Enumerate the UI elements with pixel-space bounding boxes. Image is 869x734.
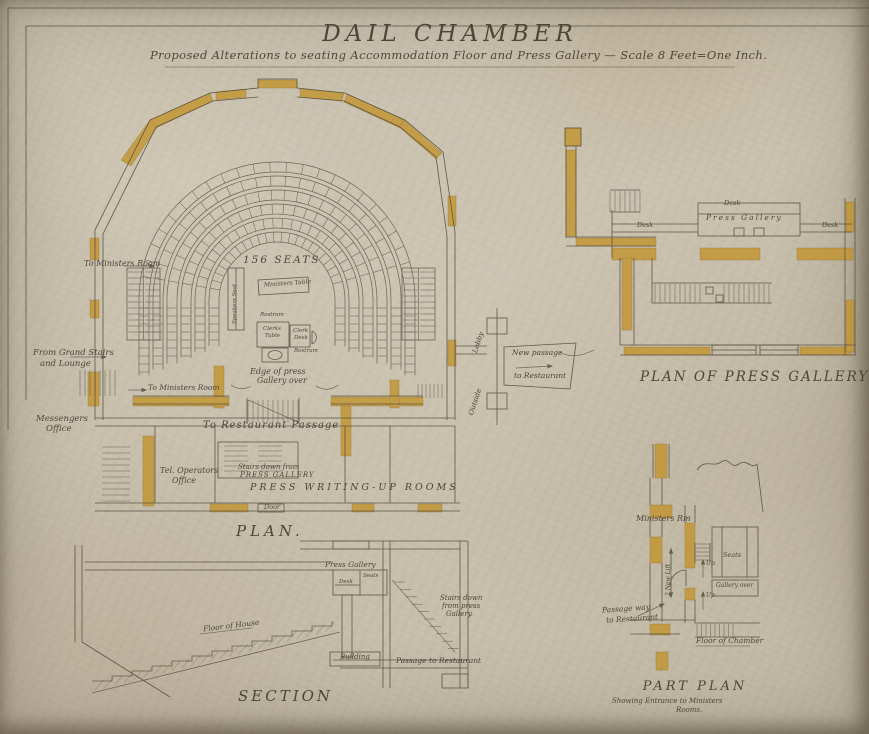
label-edge-of-press-2: Gallery over	[257, 377, 307, 385]
label-stairs-down-2: PRESS GALLERY	[240, 472, 315, 479]
sheet-subtitle: Proposed Alterations to seating Accommod…	[150, 49, 750, 61]
label-seats-count: 156 SEATS	[243, 255, 320, 266]
plan-linework	[0, 0, 869, 734]
label-sec-desk: Desk	[339, 580, 353, 586]
section-drawing	[75, 541, 468, 697]
section-title: SECTION	[238, 689, 333, 705]
label-tel-office-1: Tel. Operators	[160, 467, 218, 475]
chamber-seat-arcs	[139, 162, 415, 375]
label-ministers-rm: Ministers Rm	[636, 515, 691, 523]
label-sec-stairs-down-3: Gallery.	[446, 611, 473, 618]
section-steps-hatch	[92, 580, 459, 693]
label-new-passage-2: to Restaurant	[514, 372, 566, 380]
label-sec-press-gallery: Press Gallery	[325, 561, 376, 569]
label-rostrum-top: Rostrum	[260, 313, 284, 319]
label-to-ministers-room-top: To Ministers Room	[84, 260, 160, 268]
label-from-grand-stairs-1: From Grand Stairs	[33, 349, 114, 358]
label-pp-seats: Seats	[723, 552, 741, 559]
label-floor-of-chamber: Floor of Chamber	[696, 637, 763, 645]
plan-title: PLAN.	[236, 524, 304, 540]
part-plan-subtitle-1: Showing Entrance to Ministers	[612, 698, 723, 705]
label-to-restaurant-passage: To Restaurant Passage	[203, 421, 339, 432]
label-speakers-seat: Speakers Seat	[233, 284, 239, 324]
label-pg-desk-left: Desk	[637, 222, 653, 229]
part-plan-subtitle-2: Rooms.	[676, 707, 702, 714]
label-new-passage-1: New passage	[512, 349, 563, 357]
label-messengers-office-2: Office	[46, 425, 72, 434]
part-plan-title: PART PLAN	[630, 680, 760, 694]
label-up-2: Up	[706, 593, 715, 599]
label-from-grand-stairs-2: and Lounge	[40, 360, 91, 369]
sheet-title: DAIL CHAMBER	[320, 22, 580, 46]
label-clerks-table-1: Clerks	[263, 327, 281, 333]
label-passage-to-restaurant: Passage to Restaurant	[396, 657, 481, 665]
label-clerks-desk-2: Desk	[294, 336, 308, 342]
label-rostrum-bottom: Rostrum	[294, 349, 318, 355]
label-messengers-office-1: Messengers	[36, 415, 88, 424]
label-sec-seats: Seats	[363, 574, 378, 580]
label-pg-desk-top: Desk	[724, 200, 740, 207]
label-to-ministers-room-2: To Ministers Room	[148, 384, 220, 392]
label-tel-office-2: Office	[172, 477, 196, 485]
drawing-sheet: DAIL CHAMBER Proposed Alterations to sea…	[0, 0, 869, 734]
label-building: Building	[340, 654, 370, 661]
label-pp-gallery-over: Gallery over	[716, 583, 753, 589]
label-up-1: Up	[706, 561, 715, 567]
label-pg-desk-right: Desk	[822, 222, 838, 229]
label-new-lift: 2 New Lift	[666, 564, 672, 596]
label-clerks-table-2: Table	[265, 334, 280, 340]
label-clerks-desk-1: Clerk	[293, 329, 308, 335]
press-gallery-plan-title: PLAN OF PRESS GALLERY	[640, 370, 840, 384]
label-press-writing-rooms: PRESS WRITING-UP ROOMS	[250, 483, 420, 493]
label-pg-press-gallery: Press Gallery	[706, 214, 783, 222]
label-door: Door	[264, 504, 280, 511]
